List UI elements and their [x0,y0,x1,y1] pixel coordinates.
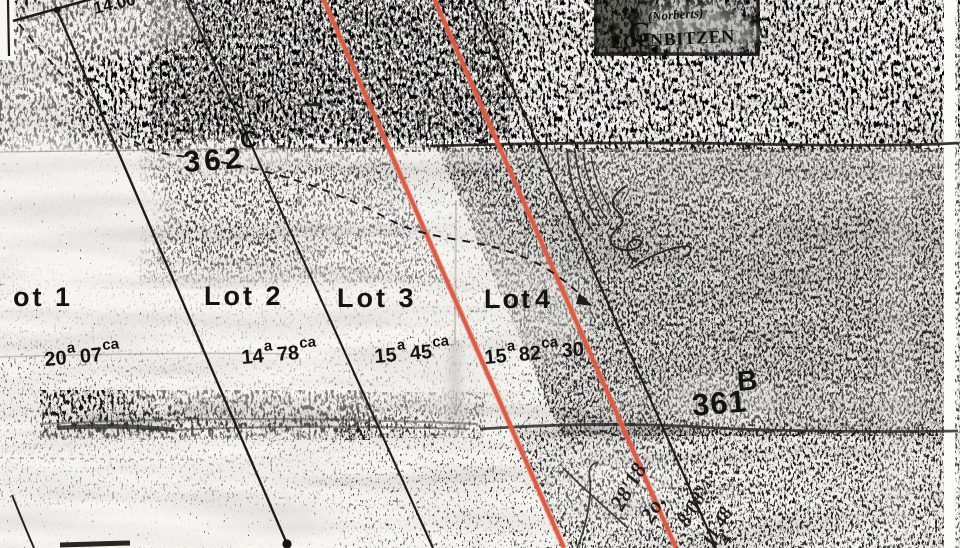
svg-text:ot 1: ot 1 [13,282,73,312]
svg-text:Lot 3: Lot 3 [337,283,417,313]
svg-text:Lot4: Lot4 [484,284,552,314]
svg-text:362: 362 [182,142,246,179]
svg-text:Lot 2: Lot 2 [204,281,284,311]
svg-text:C: C [239,126,258,154]
svg-text:G: G [628,16,651,49]
svg-text:B: B [736,364,759,397]
